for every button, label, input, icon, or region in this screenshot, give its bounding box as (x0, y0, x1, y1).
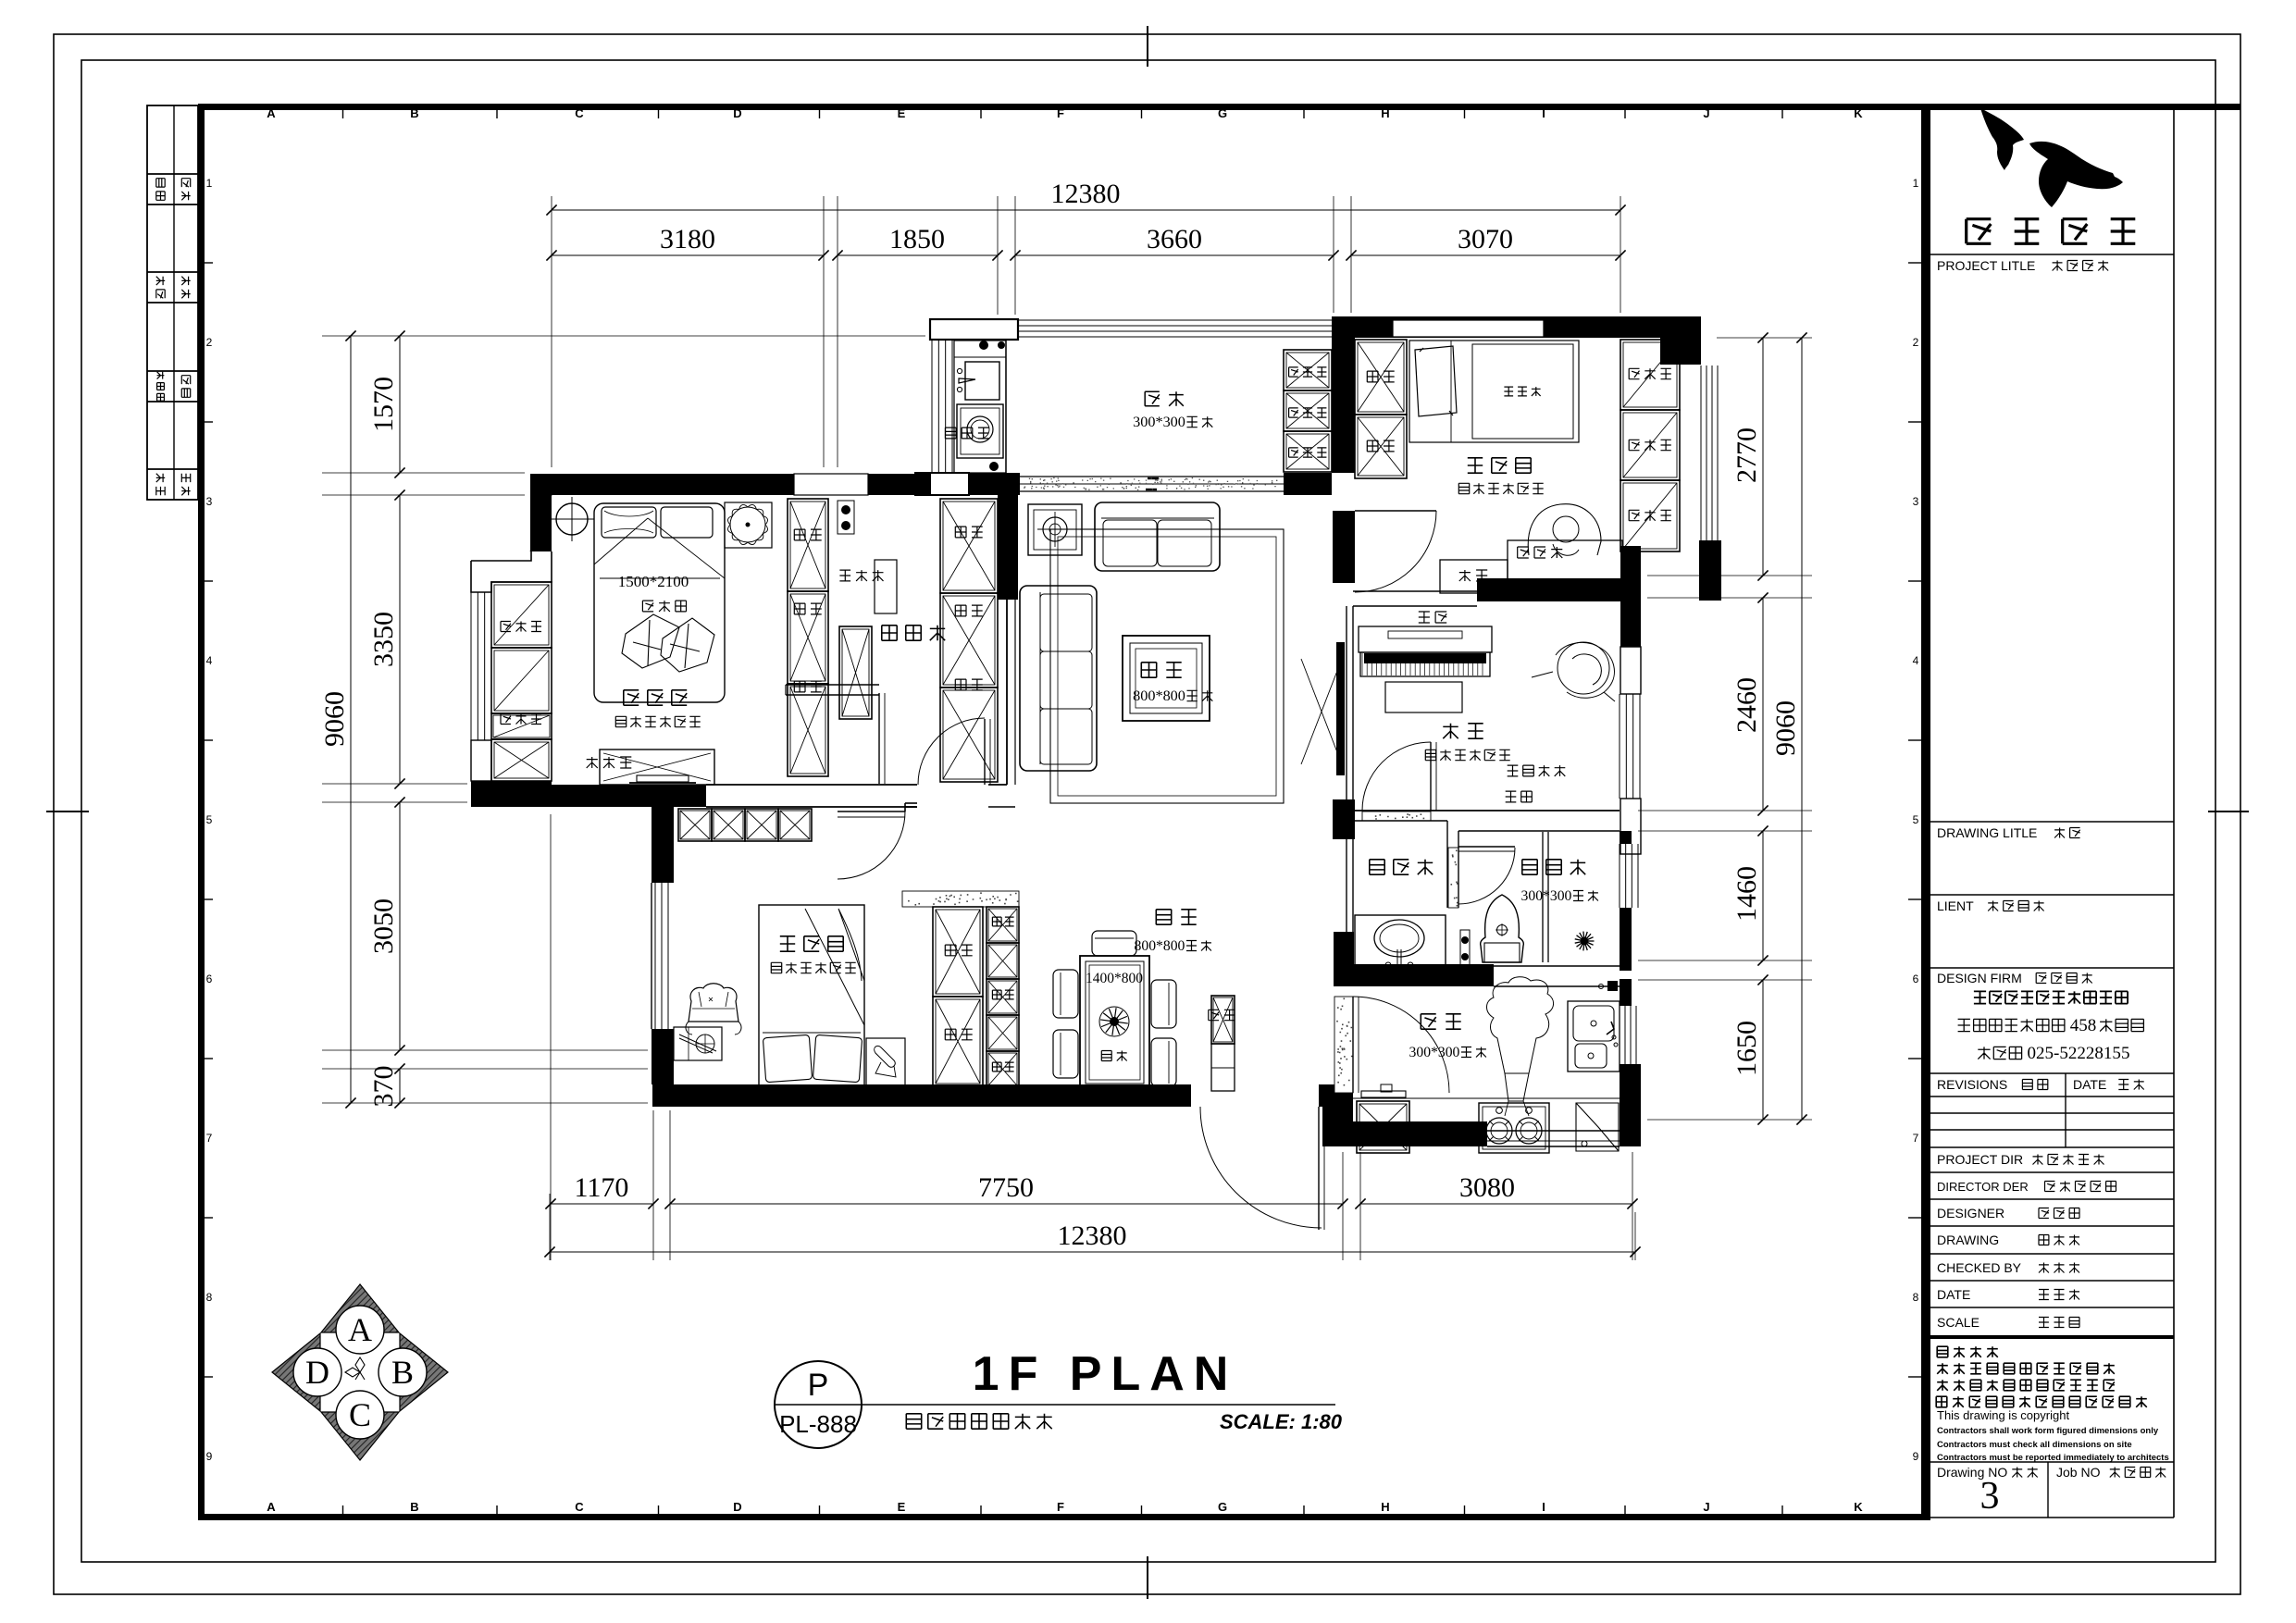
svg-text:C: C (575, 106, 584, 120)
svg-text:1500*2100: 1500*2100 (618, 573, 689, 590)
svg-text:DESIGN FIRM: DESIGN FIRM (1937, 971, 2022, 985)
svg-text:1570: 1570 (368, 377, 399, 432)
svg-text:8: 8 (1913, 1291, 1919, 1304)
svg-text:K: K (1854, 1500, 1863, 1514)
svg-text:I: I (1542, 106, 1545, 120)
svg-text:C: C (575, 1500, 584, 1514)
svg-text:K: K (1854, 106, 1863, 120)
svg-text:F: F (1057, 106, 1064, 120)
svg-text:DATE: DATE (1937, 1287, 1970, 1302)
svg-text:300*300: 300*300 (1133, 414, 1185, 430)
svg-text:D: D (733, 106, 741, 120)
svg-text:3350: 3350 (368, 612, 399, 667)
svg-text:7: 7 (206, 1132, 213, 1145)
svg-text:DATE: DATE (2073, 1077, 2106, 1092)
svg-text:DESIGNER: DESIGNER (1937, 1206, 2004, 1220)
svg-text:12380: 12380 (1051, 179, 1121, 209)
svg-text:A: A (348, 1311, 372, 1348)
svg-text:370: 370 (368, 1066, 399, 1108)
svg-text:B: B (410, 1500, 418, 1514)
svg-text:3: 3 (1913, 495, 1919, 508)
svg-text:1F PLAN: 1F PLAN (973, 1347, 1238, 1401)
svg-text:Contractors shall work form fi: Contractors shall work form figured dime… (1937, 1426, 2159, 1436)
svg-text:6: 6 (206, 973, 213, 985)
svg-text:458: 458 (2070, 1016, 2097, 1035)
svg-text:REVISIONS: REVISIONS (1937, 1077, 2007, 1092)
svg-text:D: D (733, 1500, 741, 1514)
svg-text:6: 6 (1913, 973, 1919, 985)
svg-text:I: I (1542, 1500, 1545, 1514)
svg-text:3050: 3050 (368, 898, 399, 954)
svg-text:3180: 3180 (660, 224, 715, 254)
svg-text:Contractors must check all dim: Contractors must check all dimensions on… (1937, 1440, 2132, 1450)
svg-text:1400*800: 1400*800 (1086, 971, 1143, 986)
svg-text:J: J (1703, 1500, 1709, 1514)
svg-text:3: 3 (1980, 1475, 2000, 1518)
svg-text:CHECKED BY: CHECKED BY (1937, 1260, 2022, 1275)
svg-text:G: G (1218, 106, 1227, 120)
svg-text:4: 4 (206, 654, 213, 667)
svg-text:1: 1 (206, 177, 213, 190)
svg-text:This drawing is copyright: This drawing is copyright (1937, 1408, 2069, 1422)
svg-text:7750: 7750 (978, 1172, 1034, 1203)
svg-text:SCALE: 1:80: SCALE: 1:80 (1220, 1410, 1343, 1433)
svg-text:H: H (1381, 106, 1389, 120)
svg-text:025-52228155: 025-52228155 (2027, 1044, 2129, 1063)
svg-text:3080: 3080 (1459, 1172, 1515, 1203)
svg-text:9060: 9060 (319, 691, 350, 747)
svg-text:2770: 2770 (1731, 427, 1762, 483)
svg-text:12380: 12380 (1058, 1220, 1127, 1251)
svg-text:C: C (349, 1396, 371, 1433)
svg-text:1460: 1460 (1731, 866, 1762, 922)
svg-text:1: 1 (1913, 177, 1919, 190)
svg-text:E: E (898, 1500, 906, 1514)
svg-text:LIENT: LIENT (1937, 898, 1974, 913)
svg-text:SCALE: SCALE (1937, 1315, 1980, 1330)
svg-text:PROJECT LITLE: PROJECT LITLE (1937, 258, 2035, 273)
svg-text:B: B (391, 1354, 414, 1391)
svg-text:1850: 1850 (889, 224, 945, 254)
svg-text:DRAWING: DRAWING (1937, 1233, 1999, 1247)
svg-text:G: G (1218, 1500, 1227, 1514)
svg-text:9: 9 (206, 1450, 213, 1463)
svg-text:2460: 2460 (1731, 677, 1762, 733)
svg-text:F: F (1057, 1500, 1064, 1514)
svg-text:4: 4 (1913, 654, 1919, 667)
svg-text:Job NO: Job NO (2056, 1465, 2101, 1480)
svg-text:7: 7 (1913, 1132, 1919, 1145)
svg-text:2: 2 (206, 336, 213, 349)
svg-text:300*300: 300*300 (1409, 1045, 1460, 1060)
svg-text:9: 9 (1913, 1450, 1919, 1463)
svg-text:E: E (898, 106, 906, 120)
svg-text:P: P (808, 1368, 829, 1403)
svg-text:DIRECTOR DER: DIRECTOR DER (1937, 1180, 2029, 1194)
svg-text:D: D (305, 1354, 329, 1391)
svg-text:3660: 3660 (1147, 224, 1202, 254)
svg-text:300*300: 300*300 (1521, 888, 1572, 904)
svg-text:1170: 1170 (575, 1172, 629, 1203)
svg-text:3070: 3070 (1458, 224, 1513, 254)
svg-text:5: 5 (206, 813, 213, 826)
svg-text:A: A (267, 106, 276, 120)
svg-text:800*800: 800*800 (1135, 938, 1185, 954)
svg-text:J: J (1703, 106, 1709, 120)
svg-text:3: 3 (206, 495, 213, 508)
svg-text:PL-888: PL-888 (779, 1410, 857, 1438)
svg-text:DRAWING LITLE: DRAWING LITLE (1937, 825, 2037, 840)
svg-text:B: B (410, 106, 418, 120)
svg-text:9060: 9060 (1770, 700, 1801, 756)
svg-text:800*800: 800*800 (1133, 688, 1185, 704)
svg-text:2: 2 (1913, 336, 1919, 349)
svg-text:PROJECT DIR: PROJECT DIR (1937, 1152, 2023, 1167)
svg-text:H: H (1381, 1500, 1389, 1514)
svg-text:8: 8 (206, 1291, 213, 1304)
svg-text:Contractors must be reported i: Contractors must be reported immediately… (1937, 1453, 2169, 1463)
svg-text:1650: 1650 (1731, 1021, 1762, 1076)
svg-text:5: 5 (1913, 813, 1919, 826)
svg-text:A: A (267, 1500, 276, 1514)
